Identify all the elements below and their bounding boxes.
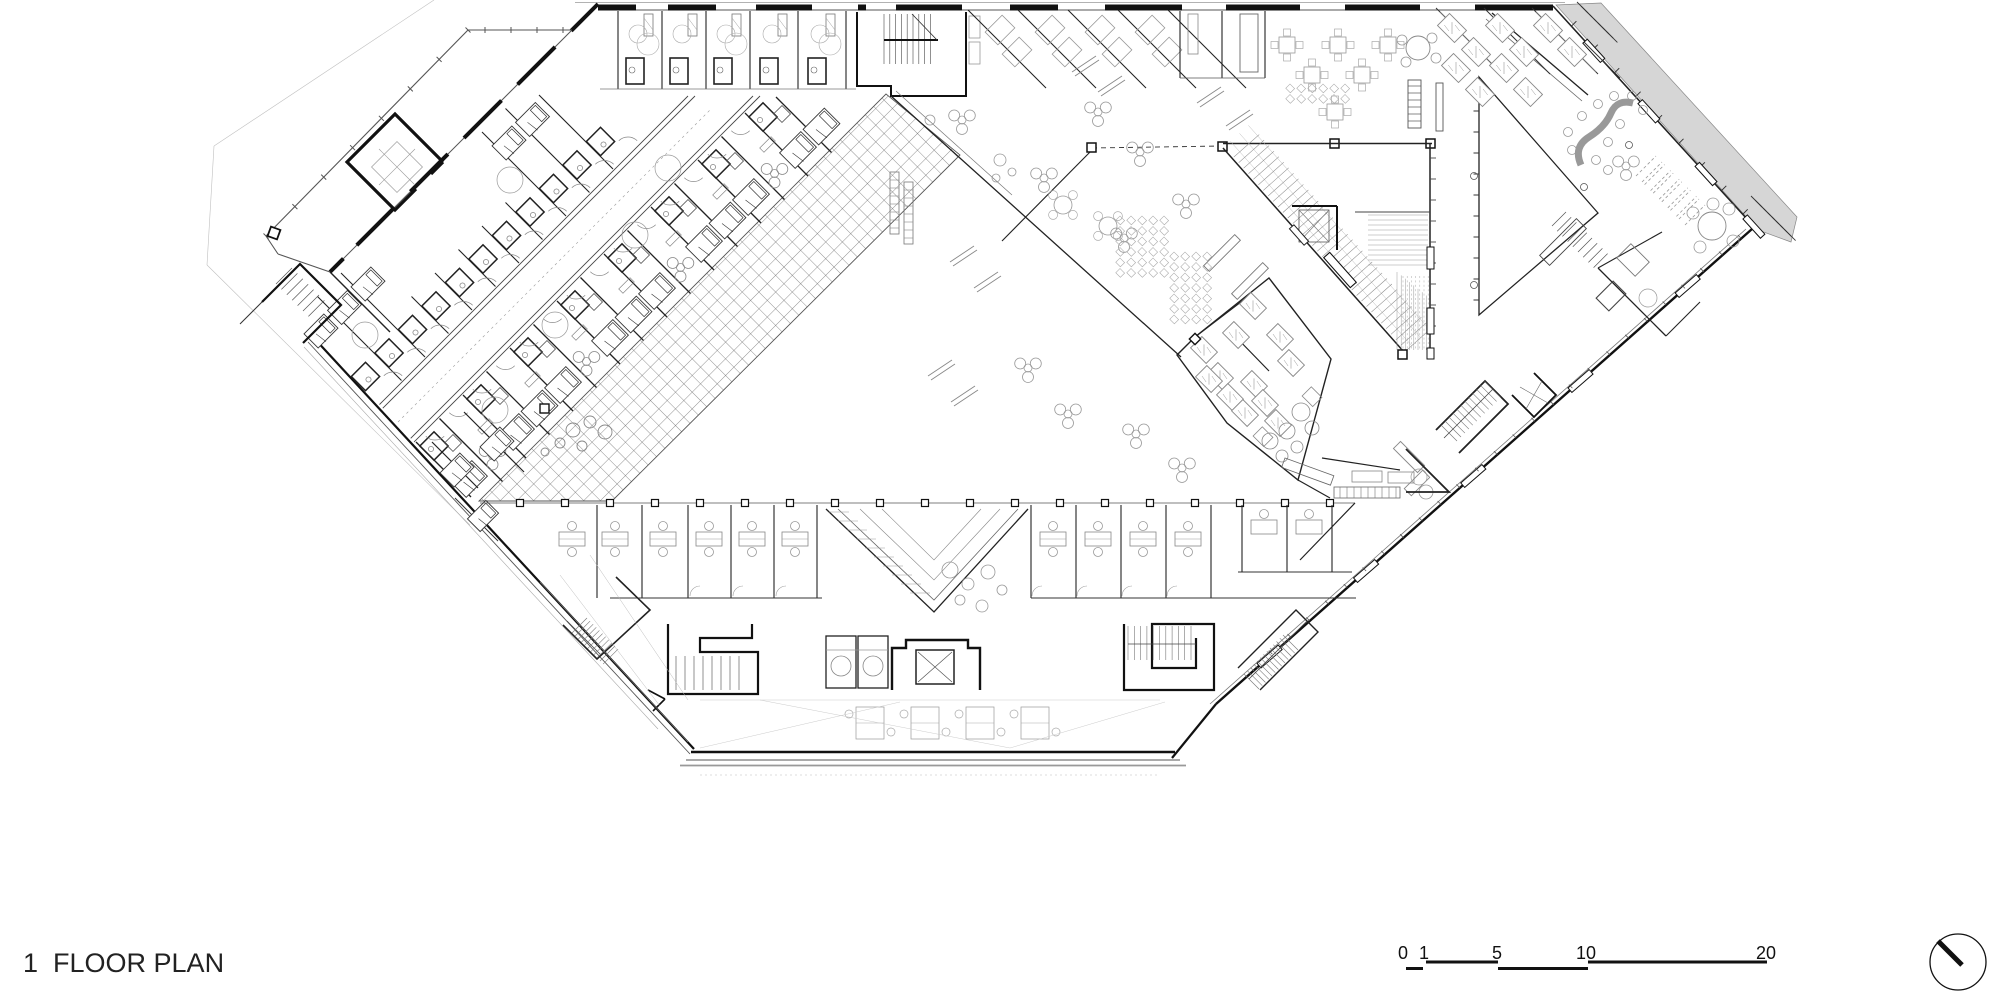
svg-text:1 FLOOR PLAN: 1 FLOOR PLAN xyxy=(23,948,224,978)
svg-text:1: 1 xyxy=(1419,943,1429,963)
svg-text:0: 0 xyxy=(1398,943,1408,963)
svg-text:20: 20 xyxy=(1756,943,1776,963)
svg-text:5: 5 xyxy=(1492,943,1502,963)
svg-text:10: 10 xyxy=(1576,943,1596,963)
